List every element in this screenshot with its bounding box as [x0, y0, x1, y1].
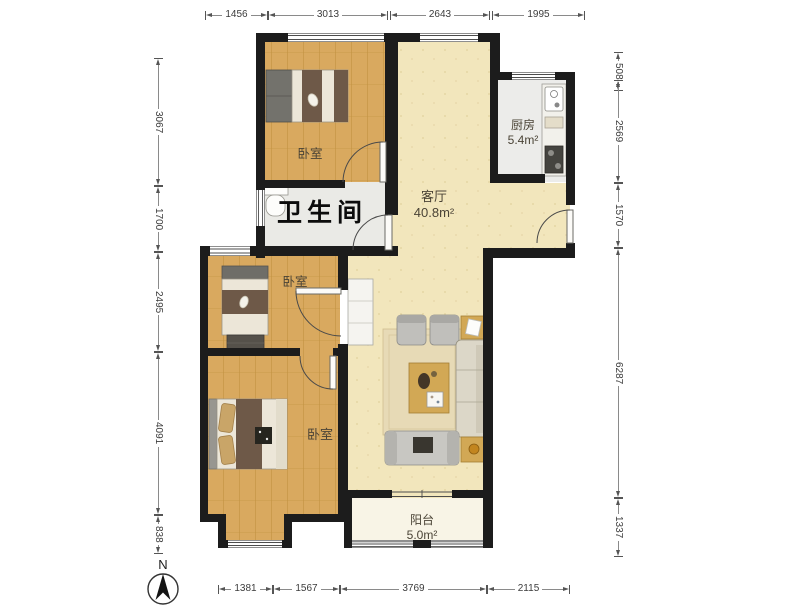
bedroom-bottom-label: 卧室 [288, 427, 352, 443]
balcony-label: 阳台 5.0m² [388, 513, 456, 543]
dim-value: 3013 [314, 9, 342, 21]
dim-top-3: 2643 [390, 9, 490, 21]
bedroom-top-window [288, 34, 384, 42]
dim-value: 508 [612, 61, 624, 82]
bathroom-label: 卫生间 [258, 200, 386, 225]
bedroom-middle-bed [222, 266, 268, 352]
bedroom-top-bed [266, 70, 348, 122]
dim-value: 1381 [231, 583, 259, 595]
dim-left-4: 4091 [152, 352, 164, 515]
dim-bottom-3: 3769 [340, 583, 487, 595]
dim-bottom-1: 1381 [218, 583, 273, 595]
dim-value: 3067 [152, 109, 164, 135]
cabinet [348, 279, 373, 345]
bedroom-middle-window [210, 247, 250, 256]
bedroom-middle-label: 卧室 [266, 275, 324, 291]
dim-value: 838 [152, 524, 164, 545]
dim-bottom-4: 2115 [487, 583, 570, 595]
dim-value: 6287 [612, 360, 624, 386]
north-label: N [150, 557, 176, 572]
dim-value: 1700 [152, 206, 164, 232]
bedroom-top-label: 卧室 [278, 147, 342, 163]
bedroom-bottom-bed [209, 399, 287, 469]
dim-value: 2115 [515, 583, 543, 595]
bay-window-floor [226, 514, 284, 542]
kitchen-name: 厨房 [511, 118, 535, 132]
compass [148, 574, 178, 604]
balcony-area: 5.0m² [388, 528, 456, 543]
living-room-name: 客厅 [421, 189, 447, 204]
balcony-name: 阳台 [410, 513, 434, 527]
kitchen-window [512, 73, 555, 80]
living-room-area: 40.8m² [398, 205, 470, 221]
bay-window [228, 541, 282, 548]
dim-value: 1995 [524, 9, 552, 21]
living-floor-entry [490, 183, 570, 249]
dim-top-2: 3013 [268, 9, 388, 21]
kitchen-label: 厨房 5.4m² [494, 118, 552, 148]
dim-right-3: 1570 [612, 183, 624, 248]
dim-right-1: 508 [612, 52, 624, 80]
dim-value: 1456 [222, 9, 250, 21]
living-room-label: 客厅 40.8m² [398, 189, 470, 222]
dim-top-1: 1456 [205, 9, 268, 21]
dim-right-4: 6287 [612, 248, 624, 498]
dim-value: 3769 [399, 583, 427, 595]
dim-value: 2569 [612, 118, 624, 144]
dim-value: 1337 [612, 514, 624, 540]
dim-value: 4091 [152, 420, 164, 446]
dim-left-3: 2495 [152, 252, 164, 352]
floor-plan-page: 卧室 卫生间 客厅 40.8m² 厨房 5.4m² 卧室 卧室 阳台 5.0m²… [0, 0, 795, 610]
dim-value: 2643 [426, 9, 454, 21]
dim-bottom-2: 1567 [273, 583, 340, 595]
dim-top-4: 1995 [492, 9, 585, 21]
living-window [420, 34, 478, 42]
dim-value: 1570 [612, 202, 624, 228]
dim-left-1: 3067 [152, 58, 164, 186]
dim-left-5: 838 [152, 515, 164, 553]
dim-value: 2495 [152, 289, 164, 315]
kitchen-area: 5.4m² [494, 133, 552, 148]
dim-value: 1567 [292, 583, 320, 595]
dim-right-5: 1337 [612, 498, 624, 557]
dim-left-2: 1700 [152, 186, 164, 252]
dim-right-2: 2569 [612, 80, 624, 183]
